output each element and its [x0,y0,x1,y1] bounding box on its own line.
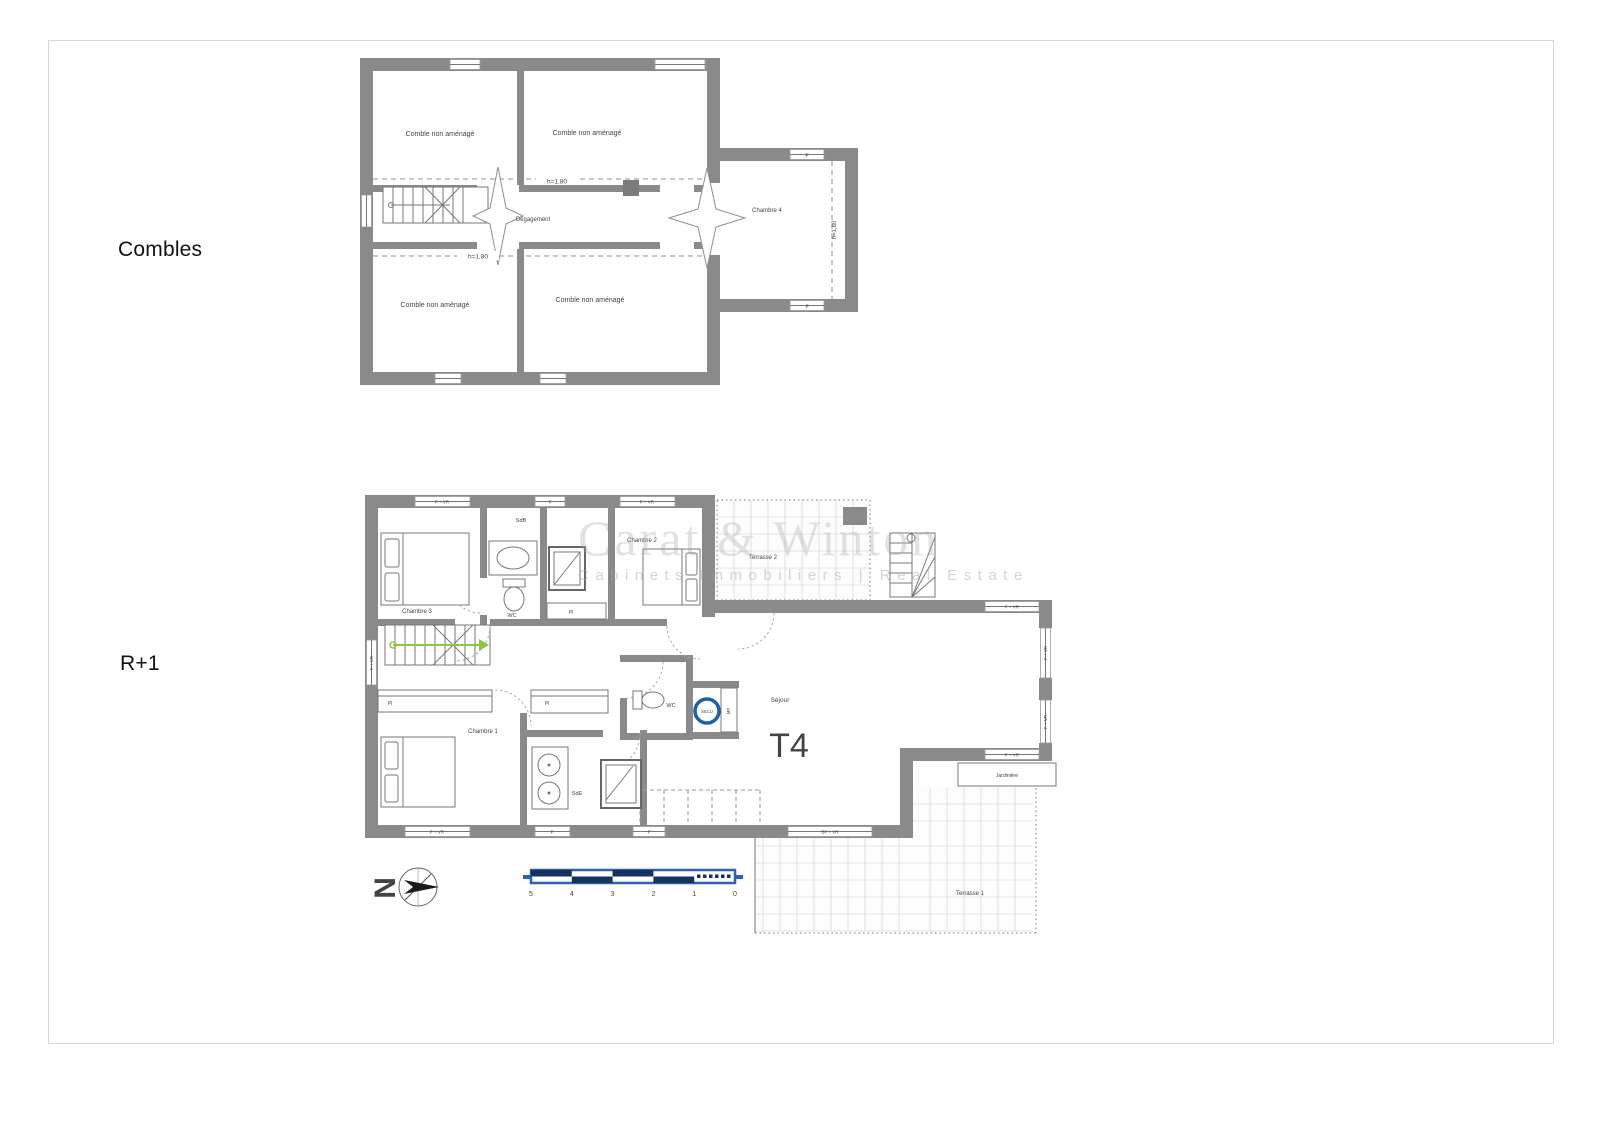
exterior-stair [890,533,935,597]
window-label-wing-top: F [805,154,808,160]
window-label-bottom1: F + VR [430,830,445,835]
room-label-comble-tl: Comble non aménagé [406,131,475,138]
r1-stairs [385,625,490,665]
label-jardiniere: Jardinière [996,773,1018,779]
closet-label-pl2: Pl [545,701,549,707]
room-label-sdb: SdB [516,518,527,524]
sde-fixtures [532,747,641,809]
window-label-wing-bottom: F [805,305,808,311]
room-label-chambre-3: Chambre 3 [402,609,432,615]
room-label-wc1: WC [507,613,516,619]
room-label-chambre-1: Chambre 1 [468,729,498,735]
height-label-top: h=1.80 [547,179,567,186]
window-label-left1: F + VR [369,655,374,670]
window-label-top2: F [549,500,552,505]
floor-label-r1: R+1 [120,652,160,676]
window-label-top3: F + VR [640,500,655,505]
terrasse-1 [755,770,1036,933]
bed-chambre-3 [381,533,469,605]
room-label-terrasse-1: Terrasse 1 [956,891,985,897]
closet-label-mp: MP [726,708,731,715]
scale-tick-4: 4 [570,891,574,898]
attic-slope-arrows [473,167,745,268]
combles-floor-plan: Comble non aménagé Comble non aménagé Co… [355,50,875,395]
sdb-fixtures [489,541,537,611]
scale-tick-3: 3 [611,891,615,898]
unit-type-label: T4 [769,727,809,765]
window-label-sejour-top: F + VR [1005,605,1020,610]
window-label-sejour-right2: F + VR [1043,714,1048,729]
compass-rose: N [368,858,448,918]
combles-height-lines [373,161,832,299]
room-label-comble-bl: Comble non aménagé [401,302,470,309]
room-label-chambre-2: Chambre 2 [627,538,657,544]
north-label: N [368,877,401,899]
secu-label: SECU [701,709,713,714]
window-label-top1: F + VR [435,500,450,505]
height-label-bottom: h=1.80 [468,254,488,261]
room-label-comble-br: Comble non aménagé [556,297,625,304]
scale-tick-2: 2 [651,891,655,898]
window-label-bottom2: F [551,830,554,835]
terrace-duct-block [843,507,867,525]
chimney-block [623,180,639,196]
room-label-sejour: Séjour [771,697,791,704]
closet-label-pl3: Pl [569,610,573,616]
window-label-sejour-bottom: F + VR [1005,753,1020,758]
terrasse-2 [717,500,870,600]
bed-chambre-2 [643,549,700,605]
room-label-degagement: Dégagement [516,217,551,223]
window-label-sejour-right1: F + VR [1043,645,1048,660]
closet-label-pl1: Pl [388,701,392,707]
room-label-chambre-4: Chambre 4 [752,208,782,214]
shower-1 [549,547,585,590]
window-label-terrace-door: BF + VR [821,830,839,835]
scale-bar-graphic [523,870,743,883]
compass-star [399,868,439,906]
combles-stairs [383,187,488,223]
scale-bar: 5 4 3 2 1 0 [523,864,743,900]
room-label-comble-tr: Comble non aménagé [553,130,622,137]
window-label-bottom3: F [648,830,651,835]
scale-tick-0: 0 [733,891,737,898]
bed-chambre-1 [381,737,455,807]
scale-tick-5: 5 [529,891,533,898]
height-label-right: h=1,80 [832,220,838,239]
room-label-sde: SdE [572,791,583,797]
floor-label-combles: Combles [118,238,202,262]
room-label-wc2: WC [666,703,675,709]
scale-tick-1: 1 [692,891,696,898]
wc2-fixtures [633,691,664,709]
room-label-terrasse-2: Terrasse 2 [749,555,778,561]
